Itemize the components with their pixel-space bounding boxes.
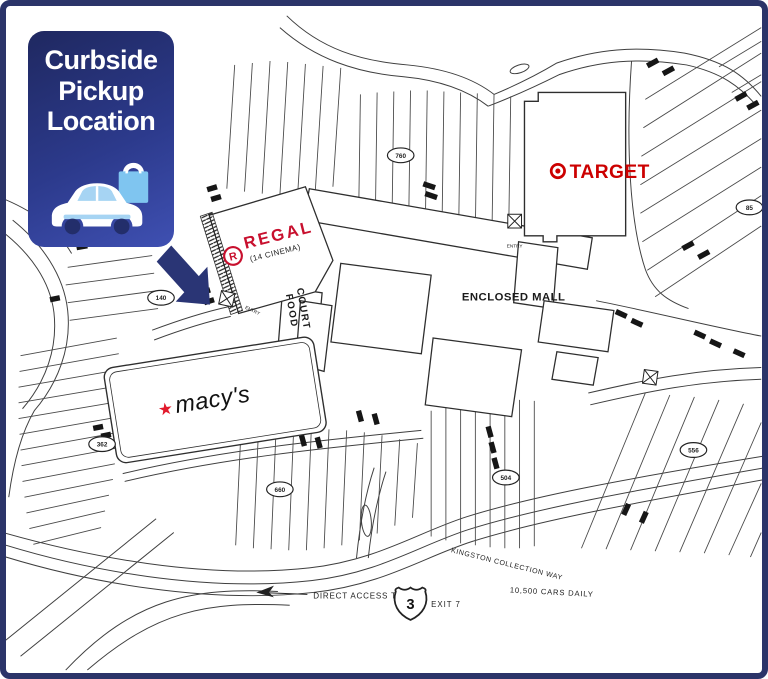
curbside-car-and-bag-graphic: [42, 153, 160, 239]
building-small-1: [538, 301, 614, 352]
callout-line-1: Curbside: [28, 45, 174, 76]
parking-count-label: 760: [395, 153, 406, 160]
parking-bank-bottom-center: [431, 399, 534, 548]
parking-count-504: 504: [493, 470, 520, 485]
route-3-number: 3: [406, 597, 414, 613]
parking-bank-bottom-center-left: [236, 429, 418, 550]
kingston-collection-way-label: KINGSTON COLLECTION WAY: [450, 547, 563, 582]
traffic-count-label: 10,500 CARS DAILY: [510, 585, 594, 598]
parking-count-label: 85: [746, 205, 754, 212]
building-small-2: [552, 352, 598, 385]
parking-count-85: 85: [736, 200, 762, 215]
entry-label: ENTRY: [507, 244, 524, 249]
road-island-top: [509, 62, 530, 76]
road-bottom-left-diagonals: [6, 519, 290, 670]
entry-marker-icon: [508, 214, 522, 228]
direct-access-label: DIRECT ACCESS TO: [313, 591, 403, 600]
macys-star-icon: ★: [157, 399, 175, 420]
enclosed-mall-label: ENCLOSED MALL: [462, 292, 566, 304]
mall-map: ENTRY ENTRY 760 140 362 660 504 556 85 T…: [0, 0, 768, 679]
direct-access-group: DIRECT ACCESS TO 3 EXIT 7: [256, 586, 461, 620]
callout-line-2: Pickup: [28, 76, 174, 107]
entry-marker-icon: [642, 370, 658, 386]
mall-right-block: [425, 338, 521, 417]
road-top: [280, 16, 761, 106]
parking-bank-near-arrow: [66, 256, 158, 321]
target-label: TARGET: [570, 162, 650, 183]
parking-count-label: 504: [500, 475, 511, 482]
parking-count-140: 140: [148, 290, 175, 305]
parking-bank-bottom-right: [581, 393, 761, 557]
parking-count-label: 556: [688, 447, 699, 454]
shopping-bag-icon: [119, 165, 149, 203]
callout-line-3: Location: [28, 106, 174, 137]
mall-center-block: [331, 263, 431, 353]
drives: [123, 61, 762, 558]
parking-count-660: 660: [267, 482, 294, 497]
target-bullseye-center: [555, 168, 560, 173]
parking-count-556: 556: [680, 443, 707, 458]
curbside-pickup-callout: Curbside Pickup Location: [28, 31, 174, 247]
parking-count-760: 760: [387, 148, 414, 163]
parking-count-label: 140: [156, 295, 167, 302]
entry-marker-icon: [219, 291, 235, 307]
parking-count-label: 362: [97, 442, 108, 449]
exit-7-label: EXIT 7: [431, 600, 461, 609]
parking-count-362: 362: [89, 437, 116, 452]
parking-bank-top-left: [227, 61, 341, 197]
parking-count-label: 660: [275, 487, 286, 494]
road-island: [360, 505, 373, 537]
